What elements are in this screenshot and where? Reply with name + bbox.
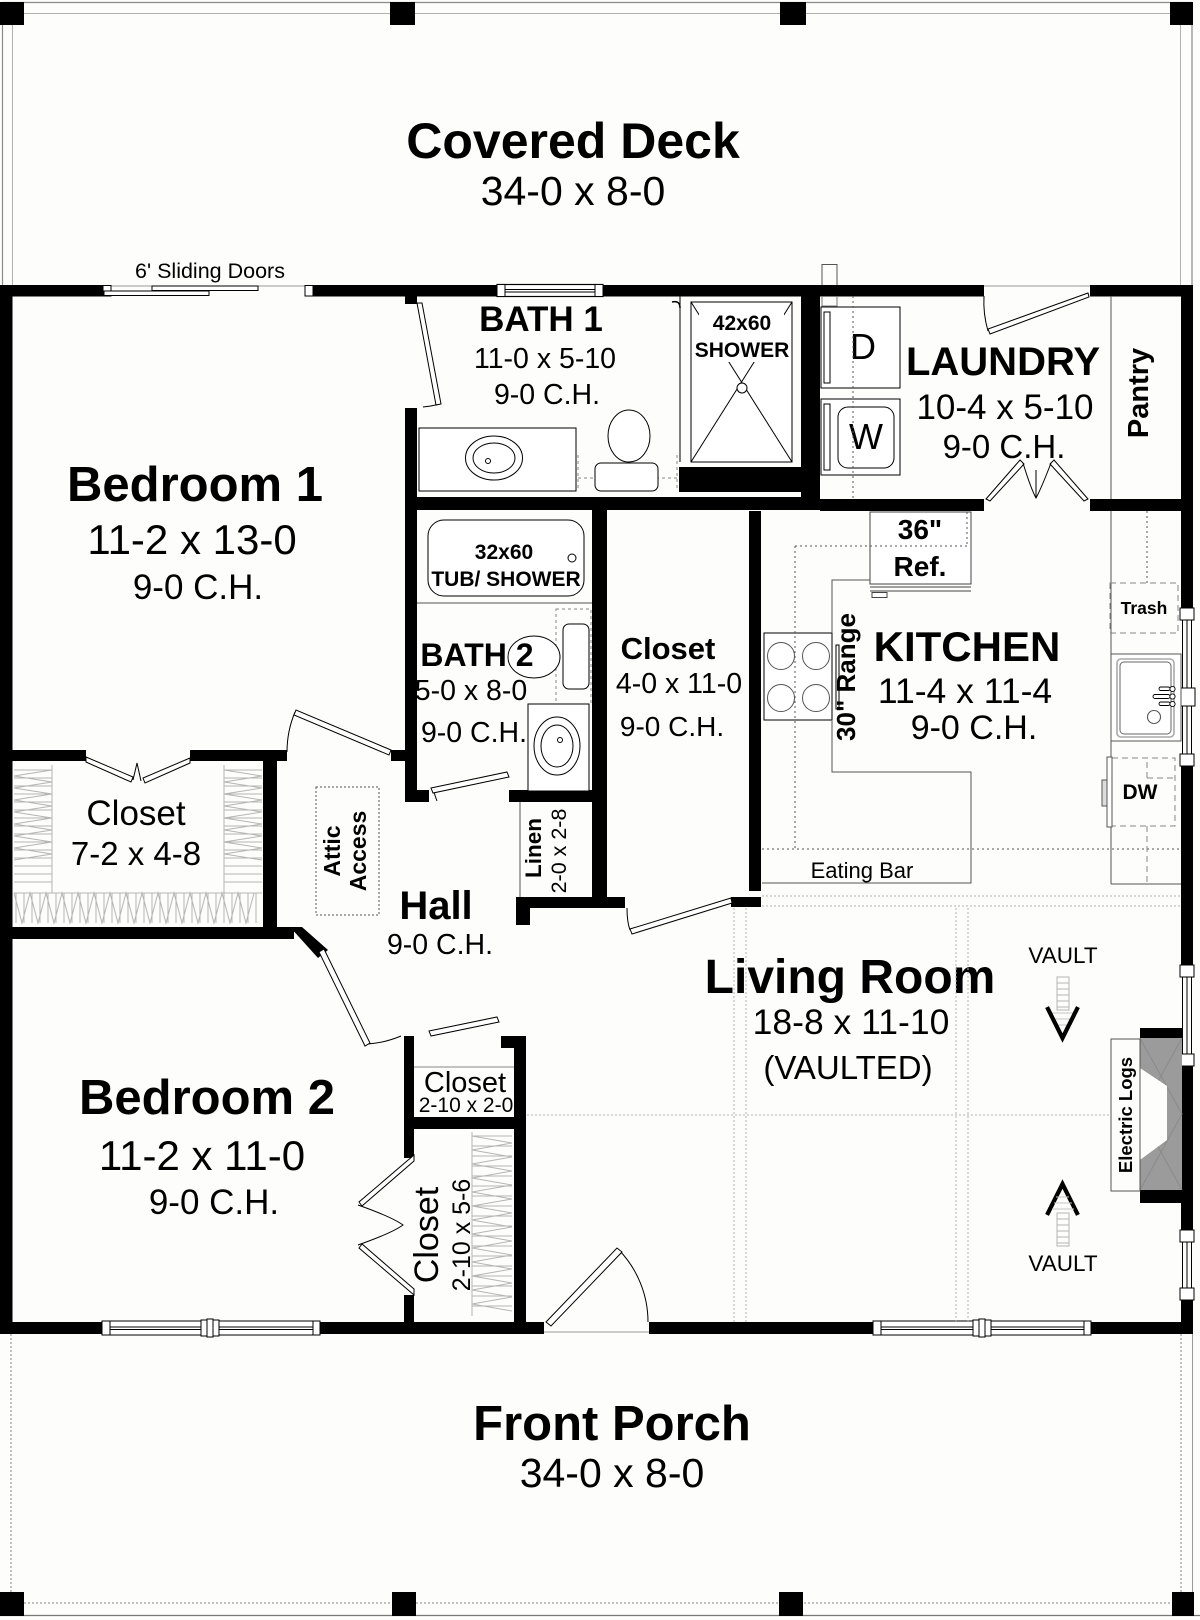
svg-text:Closet: Closet bbox=[408, 1186, 446, 1283]
svg-text:9-0 C.H.: 9-0 C.H. bbox=[133, 568, 263, 607]
svg-text:34-0 x 8-0: 34-0 x 8-0 bbox=[481, 168, 666, 214]
svg-text:Attic: Attic bbox=[319, 825, 345, 876]
svg-text:34-0 x 8-0: 34-0 x 8-0 bbox=[520, 1450, 705, 1496]
svg-text:Pantry: Pantry bbox=[1123, 348, 1155, 438]
svg-text:SHOWER: SHOWER bbox=[695, 339, 790, 362]
svg-text:Access: Access bbox=[345, 811, 371, 892]
svg-text:Covered Deck: Covered Deck bbox=[406, 113, 740, 169]
svg-text:W: W bbox=[849, 416, 883, 457]
svg-text:(VAULTED): (VAULTED) bbox=[763, 1049, 932, 1086]
svg-text:32x60: 32x60 bbox=[475, 541, 533, 564]
svg-text:Bedroom 1: Bedroom 1 bbox=[67, 458, 323, 512]
svg-text:9-0 C.H.: 9-0 C.H. bbox=[620, 711, 724, 742]
svg-text:4-0 x 11-0: 4-0 x 11-0 bbox=[616, 668, 742, 700]
svg-text:36": 36" bbox=[898, 514, 942, 545]
svg-text:7-2 x 4-8: 7-2 x 4-8 bbox=[71, 835, 201, 872]
svg-text:9-0 C.H.: 9-0 C.H. bbox=[387, 929, 493, 961]
svg-text:BATH 2: BATH 2 bbox=[420, 637, 533, 673]
svg-text:Trash: Trash bbox=[1121, 598, 1168, 618]
svg-text:Hall: Hall bbox=[399, 884, 472, 928]
svg-text:6' Sliding Doors: 6' Sliding Doors bbox=[135, 259, 285, 283]
svg-text:KITCHEN: KITCHEN bbox=[874, 623, 1061, 670]
svg-text:DW: DW bbox=[1123, 781, 1158, 804]
svg-text:2-0 x 2-8: 2-0 x 2-8 bbox=[547, 809, 571, 894]
svg-text:Living Room: Living Room bbox=[705, 951, 996, 1004]
svg-text:9-0 C.H.: 9-0 C.H. bbox=[421, 717, 527, 749]
svg-text:11-2 x 13-0: 11-2 x 13-0 bbox=[87, 516, 296, 563]
svg-text:30" Range: 30" Range bbox=[831, 613, 861, 741]
svg-text:5-0 x 8-0: 5-0 x 8-0 bbox=[415, 675, 527, 707]
svg-text:18-8 x 11-10: 18-8 x 11-10 bbox=[753, 1002, 950, 1042]
svg-text:BATH 1: BATH 1 bbox=[479, 300, 603, 339]
svg-text:9-0 C.H.: 9-0 C.H. bbox=[943, 428, 1066, 465]
svg-text:9-0 C.H.: 9-0 C.H. bbox=[494, 379, 600, 411]
svg-text:Front Porch: Front Porch bbox=[473, 1397, 751, 1451]
svg-text:LAUNDRY: LAUNDRY bbox=[906, 340, 1100, 384]
svg-text:10-4 x 5-10: 10-4 x 5-10 bbox=[916, 388, 1093, 427]
svg-text:VAULT: VAULT bbox=[1028, 943, 1097, 968]
svg-text:Ref.: Ref. bbox=[894, 551, 947, 582]
svg-text:2-10 x 2-0: 2-10 x 2-0 bbox=[419, 1094, 514, 1117]
svg-text:Linen: Linen bbox=[521, 818, 546, 878]
svg-text:11-0 x 5-10: 11-0 x 5-10 bbox=[474, 343, 616, 375]
svg-text:VAULT: VAULT bbox=[1028, 1251, 1097, 1276]
svg-text:11-2 x 11-0: 11-2 x 11-0 bbox=[99, 1132, 305, 1179]
svg-text:D: D bbox=[850, 326, 876, 367]
svg-text:Closet: Closet bbox=[86, 794, 185, 833]
svg-text:9-0 C.H.: 9-0 C.H. bbox=[911, 709, 1038, 747]
svg-text:TUB/ SHOWER: TUB/ SHOWER bbox=[431, 568, 580, 591]
svg-text:11-4 x 11-4: 11-4 x 11-4 bbox=[878, 671, 1052, 711]
svg-text:Eating Bar: Eating Bar bbox=[811, 858, 914, 883]
svg-text:Bedroom 2: Bedroom 2 bbox=[79, 1071, 335, 1125]
svg-text:42x60: 42x60 bbox=[713, 312, 771, 335]
svg-text:9-0 C.H.: 9-0 C.H. bbox=[149, 1183, 279, 1222]
svg-text:Closet: Closet bbox=[621, 631, 716, 666]
svg-text:Electric Logs: Electric Logs bbox=[1115, 1057, 1136, 1173]
